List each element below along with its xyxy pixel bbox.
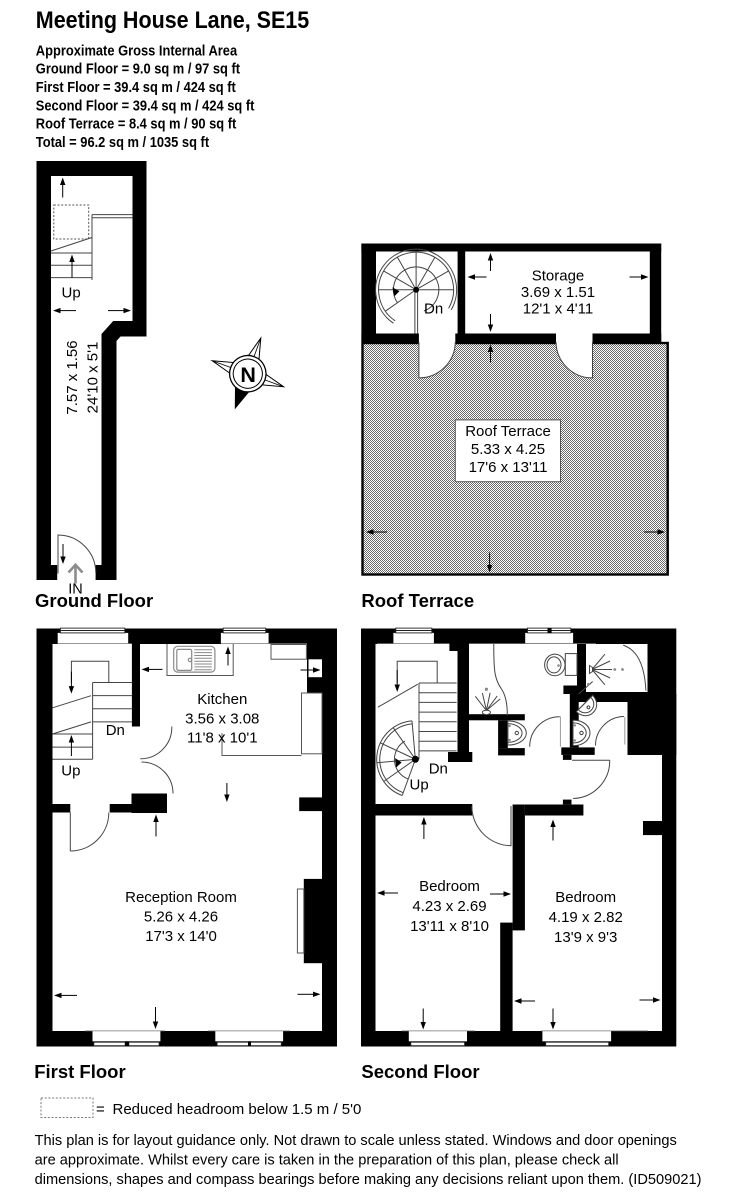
svg-text:3.56 x 3.08: 3.56 x 3.08 [185,711,259,728]
svg-text:Dn: Dn [106,722,125,739]
svg-text:Dn: Dn [424,301,443,318]
svg-text:4.19 x 2.82: 4.19 x 2.82 [549,909,623,926]
svg-text:Up: Up [62,285,81,302]
svg-text:3.69 x 1.51: 3.69 x 1.51 [521,284,595,301]
svg-text:Bedroom: Bedroom [419,878,480,895]
svg-text:Meeting House Lane, SE15: Meeting House Lane, SE15 [36,6,310,33]
svg-text:11'8 x 10'1: 11'8 x 10'1 [187,730,258,747]
svg-text:=: = [96,1101,105,1118]
svg-text:Reception Room: Reception Room [125,889,237,906]
svg-text:are approximate. Whilst every: are approximate. Whilst every care is ta… [35,1153,619,1169]
svg-text:24'10 x 5'1: 24'10 x 5'1 [85,342,102,414]
svg-text:Second Floor = 39.4 sq m / 424: Second Floor = 39.4 sq m / 424 sq ft [36,96,255,113]
svg-text:12'1 x 4'11: 12'1 x 4'11 [523,301,594,318]
svg-text:Bedroom: Bedroom [555,889,616,906]
svg-text:Ground Floor: Ground Floor [35,590,153,611]
svg-text:This plan is for layout guidan: This plan is for layout guidance only. N… [35,1133,677,1149]
svg-text:5.26 x 4.26: 5.26 x 4.26 [144,909,218,926]
svg-text:Ground Floor = 9.0 sq m / 97 s: Ground Floor = 9.0 sq m / 97 sq ft [36,60,241,77]
svg-text:Approximate Gross Internal Are: Approximate Gross Internal Area [36,41,237,58]
svg-text:First Floor: First Floor [34,1061,125,1082]
svg-text:Storage: Storage [532,268,585,285]
svg-text:17'3 x 14'0: 17'3 x 14'0 [145,928,217,945]
svg-text:Total = 96.2 sq m / 1035 sq ft: Total = 96.2 sq m / 1035 sq ft [36,133,210,150]
svg-text:Up: Up [410,777,429,794]
svg-text:Kitchen: Kitchen [197,691,247,708]
svg-text:Second Floor: Second Floor [361,1061,479,1082]
svg-text:dimensions, shapes and compass: dimensions, shapes and compass bearings … [35,1172,702,1188]
svg-text:Roof Terrace: Roof Terrace [361,590,474,611]
svg-text:17'6 x 13'11: 17'6 x 13'11 [469,459,548,476]
svg-text:Roof Terrace = 8.4 sq m / 90 s: Roof Terrace = 8.4 sq m / 90 sq ft [36,115,237,132]
svg-text:Up: Up [61,762,80,779]
svg-text:5.33 x 4.25: 5.33 x 4.25 [471,441,545,458]
svg-text:4.23 x 2.69: 4.23 x 2.69 [412,898,486,915]
svg-text:13'9 x 9'3: 13'9 x 9'3 [554,929,617,946]
svg-text:7.57 x 1.56: 7.57 x 1.56 [64,340,81,414]
svg-text:Dn: Dn [429,761,448,778]
svg-text:Roof Terrace: Roof Terrace [465,423,551,440]
svg-text:First Floor = 39.4 sq m / 424: First Floor = 39.4 sq m / 424 sq ft [36,78,236,95]
svg-text:13'11 x 8'10: 13'11 x 8'10 [410,918,489,935]
svg-text:N: N [240,363,256,387]
svg-text:Reduced headroom below 1.5 m /: Reduced headroom below 1.5 m / 5'0 [113,1101,362,1118]
